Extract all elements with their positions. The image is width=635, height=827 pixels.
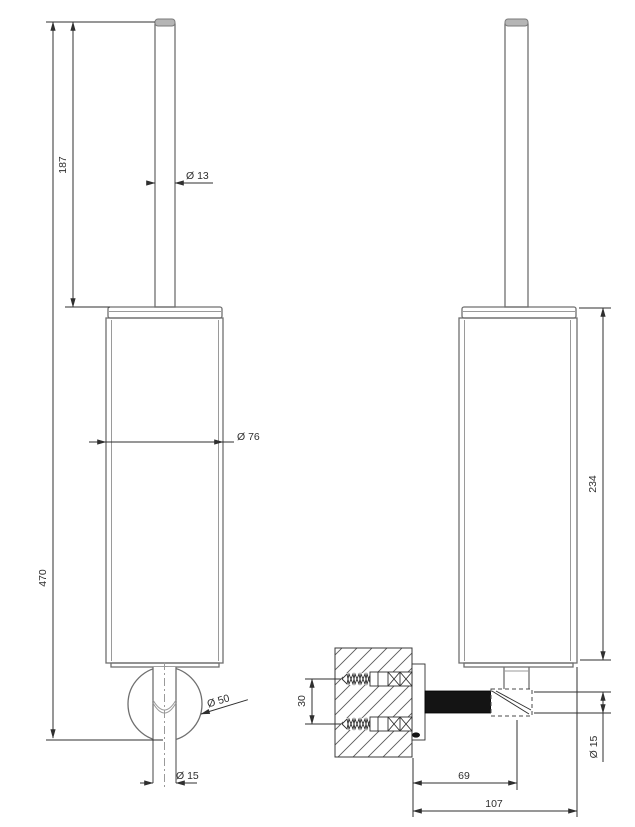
side-view: 30 234 Ø 15 69 107: [296, 19, 611, 817]
dim-470: 470: [37, 22, 163, 740]
screw-top: [342, 672, 412, 686]
dim-30: 30: [296, 679, 341, 724]
dim-234: 234: [579, 308, 611, 660]
wall-section: [335, 648, 412, 757]
dim-o15-side-label: Ø 15: [588, 735, 600, 758]
dim-o76: Ø 76: [89, 431, 260, 443]
dim-o15-side: Ø 15: [534, 692, 611, 762]
holder-body-side: [459, 307, 577, 667]
rod-bracket: [491, 667, 532, 716]
dim-187: 187: [57, 22, 110, 307]
dim-o15-front-label: Ø 15: [176, 770, 199, 782]
dim-o13-label: Ø 13: [186, 170, 209, 182]
dim-o50-leader: Ø 50: [197, 687, 248, 714]
front-view: 470 187 Ø 13 Ø 76 Ø 50: [37, 19, 260, 790]
technical-drawing: 470 187 Ø 13 Ø 76 Ø 50: [0, 0, 635, 827]
dim-107-label: 107: [485, 798, 503, 810]
dim-30-label: 30: [296, 695, 308, 707]
dim-o13: Ø 13: [147, 170, 213, 183]
handle-rod-front: [155, 19, 175, 307]
dim-o76-label: Ø 76: [237, 431, 260, 443]
dim-470-label: 470: [37, 569, 49, 587]
dim-234-label: 234: [587, 475, 599, 493]
screw-dot: [412, 732, 420, 737]
dim-69-label: 69: [458, 770, 470, 782]
brush-rod-front: [153, 662, 176, 790]
handle-rod-side: [505, 19, 528, 307]
dim-187-label: 187: [57, 156, 69, 174]
dim-o50-label: Ø 50: [206, 692, 231, 710]
screw-bottom: [342, 717, 412, 731]
wall-plate: [412, 664, 425, 740]
dim-69: 69: [413, 720, 517, 790]
holder-body-front: [106, 307, 223, 667]
mounting-arm: [425, 691, 491, 713]
drawing-canvas: 470 187 Ø 13 Ø 76 Ø 50: [0, 0, 635, 827]
